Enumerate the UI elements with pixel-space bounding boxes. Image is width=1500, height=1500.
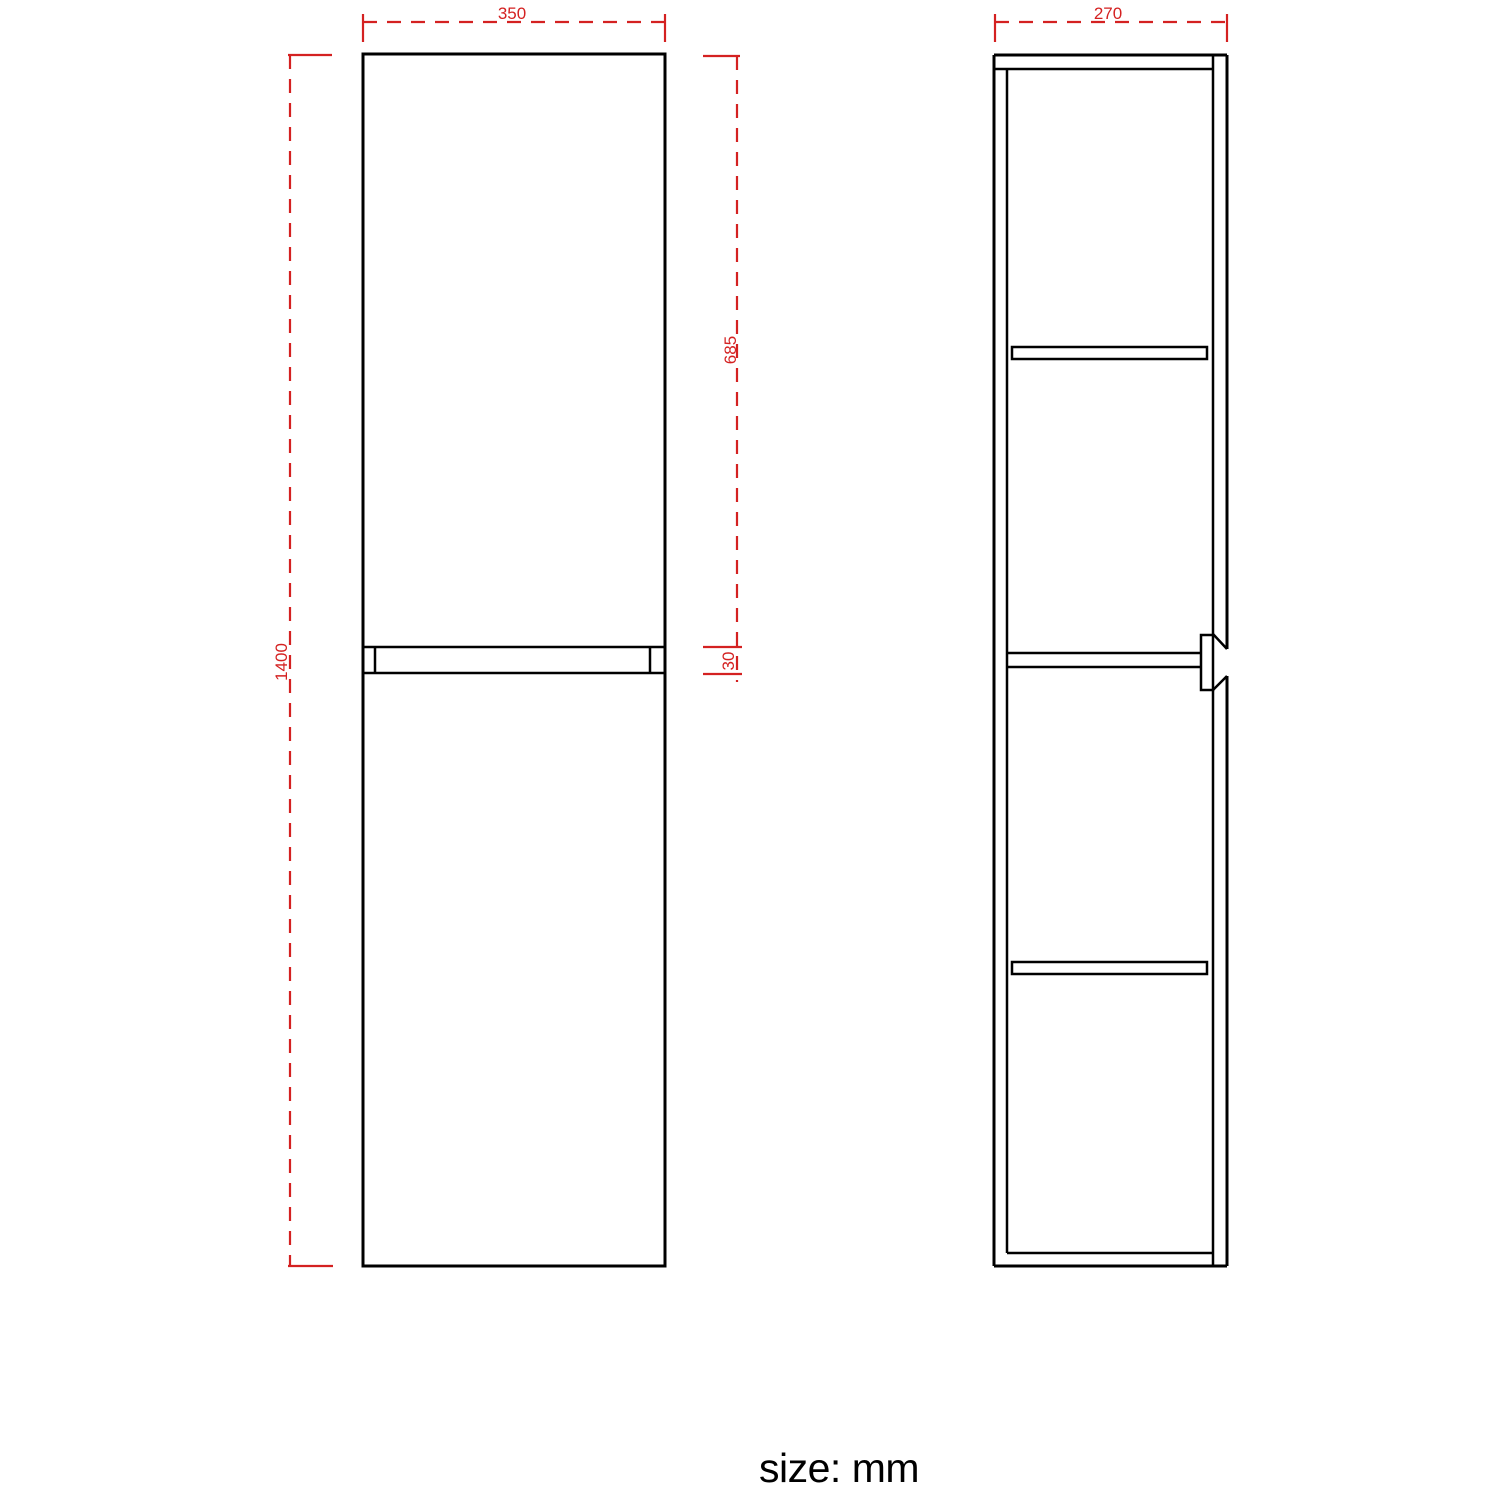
- dim-label-width: 350: [498, 4, 526, 23]
- front-view: [363, 54, 665, 1266]
- dim-label-height: 1400: [272, 643, 291, 681]
- dimension-width-350: 350: [363, 4, 665, 42]
- cabinet-dimension-drawing: 350 1400 685 30: [0, 0, 1500, 1500]
- dimension-upper-door-685: 685 30: [703, 56, 742, 682]
- lower-door-chamfer: [1213, 676, 1227, 690]
- upper-door-chamfer: [1213, 634, 1227, 649]
- front-view-cabinet-outline: [363, 54, 665, 1266]
- dim-label-door-gap: 30: [719, 652, 738, 671]
- dim-label-depth: 270: [1094, 4, 1122, 23]
- upper-shelf: [1012, 347, 1207, 359]
- dim-label-upper-door-height: 685: [721, 336, 740, 364]
- dimension-height-1400: 1400: [272, 55, 333, 1266]
- side-view: [994, 55, 1227, 1266]
- lower-shelf: [1012, 962, 1207, 974]
- technical-drawing-page: 350 1400 685 30: [0, 0, 1500, 1500]
- dimension-depth-270: 270: [995, 4, 1227, 42]
- middle-divider-front-block: [1201, 635, 1213, 690]
- units-note: size: mm: [759, 1445, 919, 1492]
